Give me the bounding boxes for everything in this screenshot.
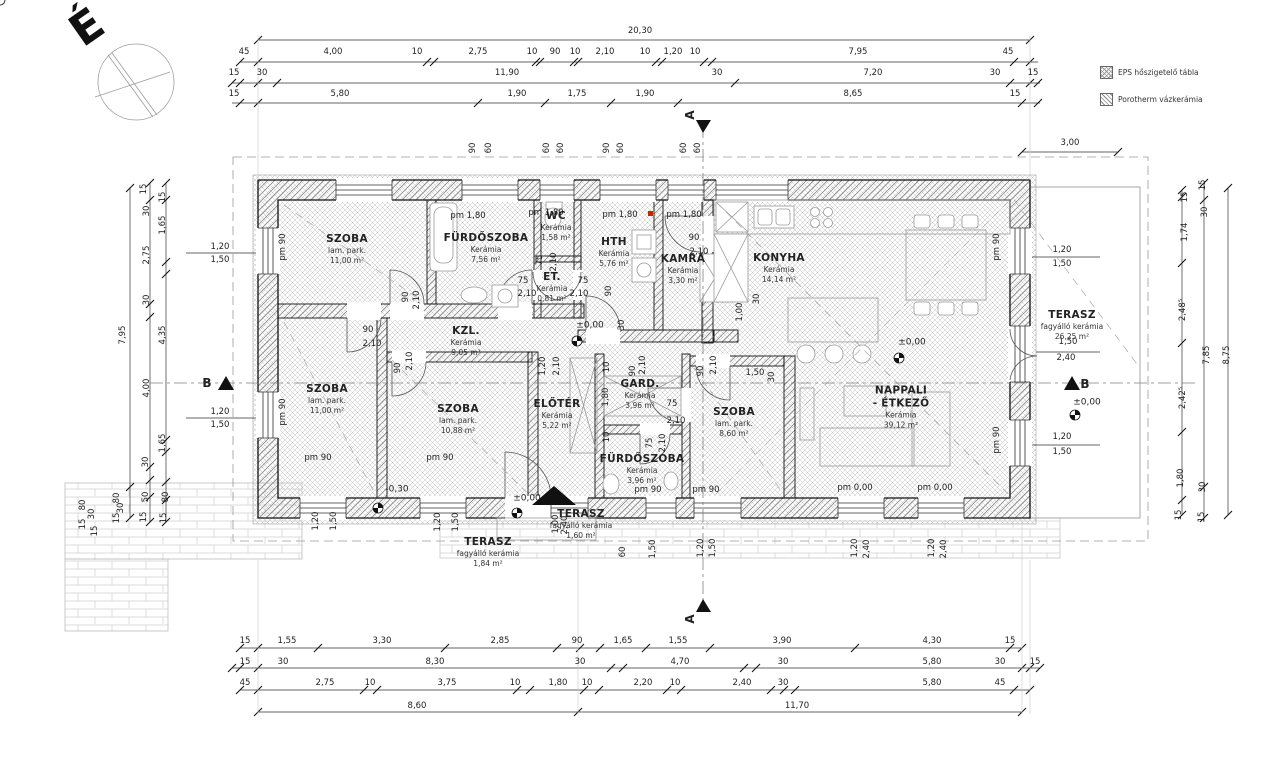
dim-label: 2,10 (363, 340, 382, 349)
parapet-label: pm 90 (692, 486, 719, 495)
level-label: -0,30 (385, 486, 408, 495)
parapet-label: pm 0,00 (837, 484, 872, 493)
parapet-label: pm 1,80 (666, 211, 701, 220)
room-label: KONYHAKerámia14,14 m² (753, 252, 805, 284)
dim-label: 1,20 (664, 48, 683, 57)
dim-label: 4,70 (671, 658, 690, 667)
dim-label: 15 (1030, 658, 1041, 667)
room-label: FÜRDŐSZOBAKerámia7,56 m² (444, 232, 529, 264)
dim-label: 10 (670, 679, 681, 688)
room-label: SZOBAlam. park.11,00 m² (326, 233, 368, 265)
dim-label: 15 (160, 513, 169, 524)
dim-label: 8,65 (844, 90, 863, 99)
dim-label: 15 (159, 192, 168, 203)
dim-label: 75 (578, 277, 589, 286)
dim-label: 20,30 (628, 27, 652, 36)
dim-label: 1,50 (211, 421, 230, 430)
dim-label: 30 (990, 69, 1001, 78)
dim-label: 2,10 (570, 290, 589, 299)
dim-label: 45 (240, 679, 251, 688)
parapet-label: pm 90 (279, 233, 288, 260)
dim-label: 1,50 (330, 512, 339, 531)
section-a-bottom-marker (696, 599, 711, 612)
dim-label: 2,10 (639, 356, 648, 375)
dim-label: 1,74 (1181, 223, 1190, 242)
dim-label: 1,50 (649, 540, 658, 559)
section-label: B (202, 377, 211, 389)
dim-label: 2,10 (710, 356, 719, 375)
dim-label: 7,95 (119, 326, 128, 345)
dim-label: 45 (239, 48, 250, 57)
parapet-label: pm 90 (634, 486, 661, 495)
dim-label: 2,10 (413, 291, 422, 310)
dim-label: 10 (582, 679, 593, 688)
dim-label: 15 (1175, 510, 1184, 521)
dim-label: 3,90 (773, 637, 792, 646)
dim-label: 5,80 (331, 90, 350, 99)
room-label: SZOBAlam. park.8,60 m² (713, 406, 755, 438)
dim-label: 10 (690, 48, 701, 57)
parapet-label: pm 90 (279, 398, 288, 425)
parapet-label: pm 90 (993, 426, 1002, 453)
eps-swatch (1100, 66, 1113, 79)
dim-label: 1,20 (1053, 433, 1072, 442)
dim-label: 7,20 (864, 69, 883, 78)
level-label: ±0,00 (513, 495, 541, 504)
section-label: A (684, 614, 696, 623)
level-label: ±0,00 (1073, 399, 1101, 408)
dim-label: 1,55 (669, 637, 688, 646)
legend-label: EPS hőszigetelő tábla (1118, 68, 1199, 77)
dim-label: 60 (557, 143, 566, 154)
dim-label: 30 (278, 658, 289, 667)
dim-label: 15 (140, 184, 149, 195)
dim-label: 15 (229, 90, 240, 99)
floorplan-page: É EPS hőszigetelő táblaPorotherm vázkerá… (0, 0, 1280, 757)
dim-label: 60 (619, 547, 628, 558)
parapet-label: pm 90 (304, 454, 331, 463)
dim-label: 15 (229, 69, 240, 78)
dim-label: 2,20 (634, 679, 653, 688)
dim-label: 8,30 (426, 658, 445, 667)
section-a-top-marker (696, 120, 711, 133)
dim-label: 10 (603, 362, 612, 373)
dim-label: 10 (412, 48, 423, 57)
dim-label: 30 (768, 372, 777, 383)
dim-label: 90 (550, 48, 561, 57)
dim-label: 2,10 (553, 357, 562, 376)
dim-label: 75 (646, 438, 655, 449)
dim-label: 45 (1003, 48, 1014, 57)
dim-label: 1,50 (1053, 448, 1072, 457)
dim-label: 30 (778, 658, 789, 667)
dim-label: 2,42⁵ (1179, 387, 1188, 409)
dim-label: 90 (394, 363, 403, 374)
dim-label: 1,20 (434, 513, 443, 532)
dim-label: 30 (618, 320, 627, 331)
dim-label: 4,00 (143, 379, 152, 398)
dim-label: 2,75 (316, 679, 335, 688)
dim-label: 60 (694, 143, 703, 154)
dim-label: 1,20 (928, 539, 937, 558)
dim-label: 90 (603, 143, 612, 154)
dim-label: 1,50 (746, 369, 765, 378)
dim-label: 90 (469, 143, 478, 154)
dim-label: 1,20 (211, 243, 230, 252)
dim-label: 30 (143, 206, 152, 217)
dim-label: 11,90 (495, 69, 519, 78)
room-label: TERASZfagyálló kerámia1,60 m² (550, 508, 613, 540)
dim-label: 90 (629, 366, 638, 377)
dim-label: 15 (1181, 192, 1190, 203)
dim-label: 15 (1198, 512, 1207, 523)
dim-label: 11,70 (785, 702, 809, 711)
smoke-detector-dot (648, 211, 653, 216)
parapet-label: pm 90 (993, 233, 1002, 260)
dim-label: 1,75 (568, 90, 587, 99)
dim-label: 15 (79, 519, 88, 530)
dim-label: 2,10 (667, 417, 686, 426)
dim-label: 1,50 (452, 513, 461, 532)
parapet-label: pm 1,80 (450, 212, 485, 221)
room-label: GARD.Kerámia3,96 m² (620, 378, 659, 410)
room-label: WCKerámia1,58 m² (541, 210, 572, 242)
dim-label: 2,40 (863, 540, 872, 559)
dim-label: 1,50 (1053, 260, 1072, 269)
dim-label: 3,00 (1061, 139, 1080, 148)
room-label: KZL.Kerámia9,05 m² (451, 325, 482, 357)
dim-label: 2,40 (940, 540, 949, 559)
dim-label: 30 (753, 294, 762, 305)
legend-item: Porotherm vázkerámia (1100, 93, 1203, 106)
dim-label: 10 (365, 679, 376, 688)
dim-label: 3,30 (373, 637, 392, 646)
dim-label: 8,60 (408, 702, 427, 711)
section-label: A (684, 110, 696, 119)
dim-label: 1,20 (851, 539, 860, 558)
dim-label: 1,20 (539, 357, 548, 376)
legend-label: Porotherm vázkerámia (1118, 95, 1203, 104)
dim-label: 2,10 (406, 352, 415, 371)
dim-label: 7,95 (849, 48, 868, 57)
dim-label: 90 (605, 286, 614, 297)
parapet-label: pm 0,00 (917, 484, 952, 493)
dim-label: 1,90 (508, 90, 527, 99)
dim-label: 90 (363, 326, 374, 335)
room-label: SZOBAlam. park.10,88 m² (437, 403, 479, 435)
dim-label: 1,50 (211, 256, 230, 265)
dim-label: 75 (667, 400, 678, 409)
dim-label: 4,35 (159, 326, 168, 345)
dim-label: 15 (1199, 180, 1208, 191)
dim-label: 15 (1005, 637, 1016, 646)
level-markers (0, 0, 5, 5)
dim-label: 2,85 (491, 637, 510, 646)
dim-label: 80 (162, 492, 171, 503)
room-label: ET.Kerámia0,81 m² (537, 271, 568, 303)
dim-label: 8,75 (1223, 346, 1232, 365)
room-label: FÜRDŐSZOBAKerámia3,96 m² (600, 453, 685, 485)
dim-label: 60 (543, 143, 552, 154)
dim-label: 5,80 (923, 658, 942, 667)
dim-label: 1,65 (159, 216, 168, 235)
dim-label: 1,20 (697, 539, 706, 558)
dim-label: 1,80 (602, 388, 611, 407)
dim-label: 4,30 (923, 637, 942, 646)
dim-label: 30 (1199, 482, 1208, 493)
dim-label: 10 (527, 48, 538, 57)
dim-label: 30 (143, 295, 152, 306)
dim-label: 45 (995, 679, 1006, 688)
dim-label: 15 (240, 658, 251, 667)
dim-label: 1,80 (1177, 469, 1186, 488)
level-label: ±0,00 (898, 339, 926, 348)
dim-label: 10 (640, 48, 651, 57)
dim-label: 1,20 (1053, 246, 1072, 255)
dim-label: 15 (113, 513, 122, 524)
dim-label: 90 (689, 234, 700, 243)
dim-label: 15 (1010, 90, 1021, 99)
legend-item: EPS hőszigetelő tábla (1100, 66, 1203, 79)
dim-label: 2,10 (550, 253, 559, 272)
dim-label: 30 (1201, 207, 1210, 218)
dim-label: 30 (712, 69, 723, 78)
dim-label: 2,10 (659, 434, 668, 453)
dim-label: 2,75 (469, 48, 488, 57)
dim-label: 90 (697, 366, 706, 377)
dim-label: 75 (536, 255, 545, 266)
porotherm-swatch (1100, 93, 1113, 106)
room-label: NAPPALI- ÉTKEZŐKerámia39,12 m² (873, 385, 930, 430)
dim-label: 1,55 (278, 637, 297, 646)
dim-label: 75 (518, 277, 529, 286)
dim-label: 30 (257, 69, 268, 78)
dim-label: 60 (680, 143, 689, 154)
parapet-label: pm 90 (426, 454, 453, 463)
dim-label: 1,50 (709, 539, 718, 558)
section-label: B (1080, 378, 1089, 390)
dim-label: 2,40 (1057, 354, 1076, 363)
dim-label: 50 (142, 492, 151, 503)
dim-label: 2,10 (596, 48, 615, 57)
dim-label: 90 (402, 292, 411, 303)
dim-label: 1,65 (614, 637, 633, 646)
dim-label: 15 (91, 526, 100, 537)
dim-label: 1,20 (211, 408, 230, 417)
dim-label: 10 (603, 432, 612, 443)
dim-label: 90 (572, 637, 583, 646)
dim-label: 10 (570, 48, 581, 57)
room-label: ELŐTÉRKerámia5,22 m² (533, 398, 580, 430)
dim-label: 2,40 (733, 679, 752, 688)
room-label: TERASZfagyálló kerámia26,25 m² (1041, 309, 1104, 341)
dim-label: 2,75 (143, 246, 152, 265)
parapet-label: pm 1,80 (602, 211, 637, 220)
dim-label: 1,65 (159, 434, 168, 453)
room-label: KAMRAKerámia3,30 m² (661, 253, 705, 285)
dim-label: 4,00 (324, 48, 343, 57)
dim-label: 30 (142, 457, 151, 468)
dim-label: 30 (778, 679, 789, 688)
dim-label: 5,80 (923, 679, 942, 688)
legend: EPS hőszigetelő táblaPorotherm vázkerámi… (1100, 66, 1203, 106)
dim-label: 2,10 (518, 290, 537, 299)
dim-label: 15 (140, 512, 149, 523)
dim-label: 7,85 (1203, 346, 1212, 365)
level-label: ±0,00 (576, 322, 604, 331)
dim-label: 30 (88, 509, 97, 520)
dim-label: 60 (617, 143, 626, 154)
dim-label: 1,00 (736, 303, 745, 322)
dim-label: 3,75 (438, 679, 457, 688)
dim-label: 15 (1028, 69, 1039, 78)
dim-label: 2,48⁵ (1179, 299, 1188, 321)
dim-label: 10 (510, 679, 521, 688)
dim-label: 1,80 (549, 679, 568, 688)
dim-label: 30 (995, 658, 1006, 667)
dim-label: 1,20 (312, 512, 321, 531)
dim-label: 30 (575, 658, 586, 667)
room-label: SZOBAlam. park.11,00 m² (306, 383, 348, 415)
dim-label: 1,90 (636, 90, 655, 99)
dim-label: 60 (485, 143, 494, 154)
room-label: TERASZfagyálló kerámia1,84 m² (457, 536, 520, 568)
room-label: HTHKerámia5,76 m² (599, 236, 630, 268)
dim-label: 15 (240, 637, 251, 646)
north-compass (95, 44, 174, 120)
